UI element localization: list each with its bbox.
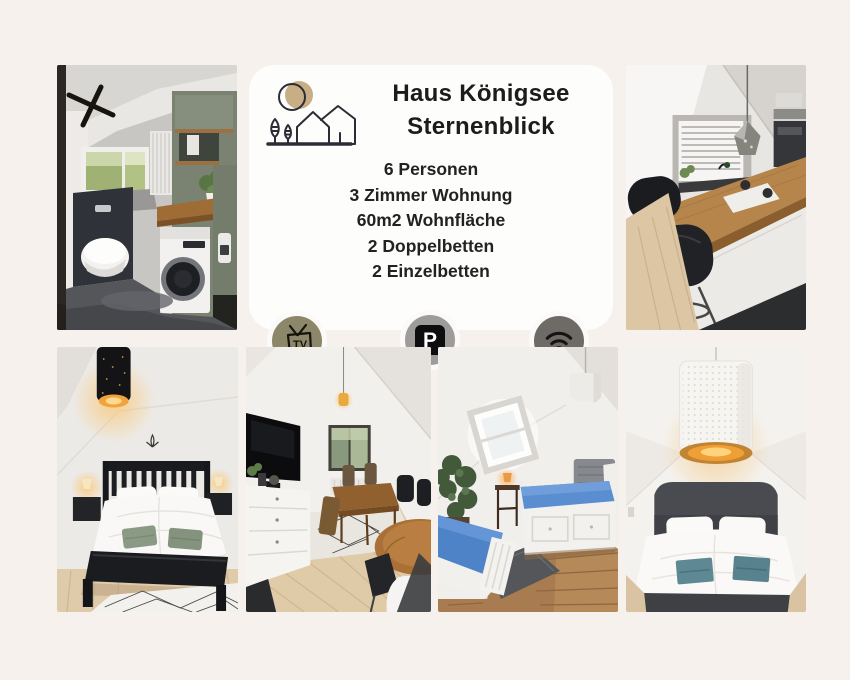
page-title: Haus Königsee Sternenblick xyxy=(355,77,607,143)
photo-bathroom xyxy=(57,65,237,330)
title-line-1: Haus Königsee xyxy=(355,77,607,110)
property-details: 6 Personen 3 Zimmer Wohnung 60m2 Wohnflä… xyxy=(249,157,613,285)
photo-single-beds-room xyxy=(438,347,618,612)
title-line-2: Sternenblick xyxy=(355,110,607,143)
detail-persons: 6 Personen xyxy=(249,157,613,183)
photo-living-dining xyxy=(246,347,431,612)
photo-kitchen xyxy=(626,65,806,330)
info-card: Haus Königsee Sternenblick 6 Personen 3 … xyxy=(249,65,613,330)
photo-bedroom-grey-bed xyxy=(626,347,806,612)
photo-bedroom-black-bed xyxy=(57,347,238,612)
detail-single-beds: 2 Einzelbetten xyxy=(249,259,613,285)
detail-double-beds: 2 Doppelbetten xyxy=(249,234,613,260)
detail-area: 60m2 Wohnfläche xyxy=(249,208,613,234)
house-sun-trees-logo-icon xyxy=(263,77,359,157)
detail-rooms: 3 Zimmer Wohnung xyxy=(249,183,613,209)
listing-collage: Haus Königsee Sternenblick 6 Personen 3 … xyxy=(0,0,850,680)
